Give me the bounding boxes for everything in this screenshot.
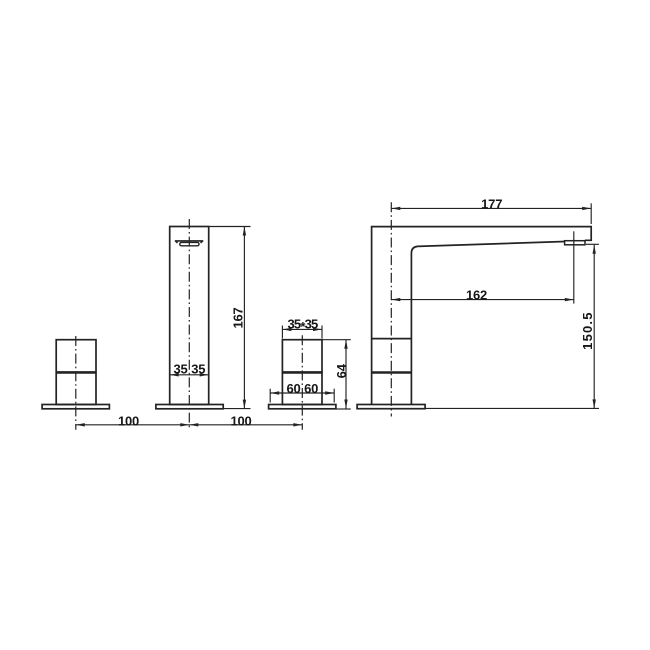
svg-text:177: 177 [481,197,502,212]
svg-text:64: 64 [334,363,349,378]
svg-text:150.5: 150.5 [580,311,595,350]
svg-text:60: 60 [286,381,300,396]
svg-text:35: 35 [191,361,205,376]
svg-text:35: 35 [174,361,188,376]
svg-text:60: 60 [304,381,318,396]
svg-text:162: 162 [466,287,487,302]
svg-text:100: 100 [230,413,251,428]
svg-text:35*35: 35*35 [287,317,318,334]
svg-text:100: 100 [118,413,139,428]
svg-text:167: 167 [231,307,246,328]
